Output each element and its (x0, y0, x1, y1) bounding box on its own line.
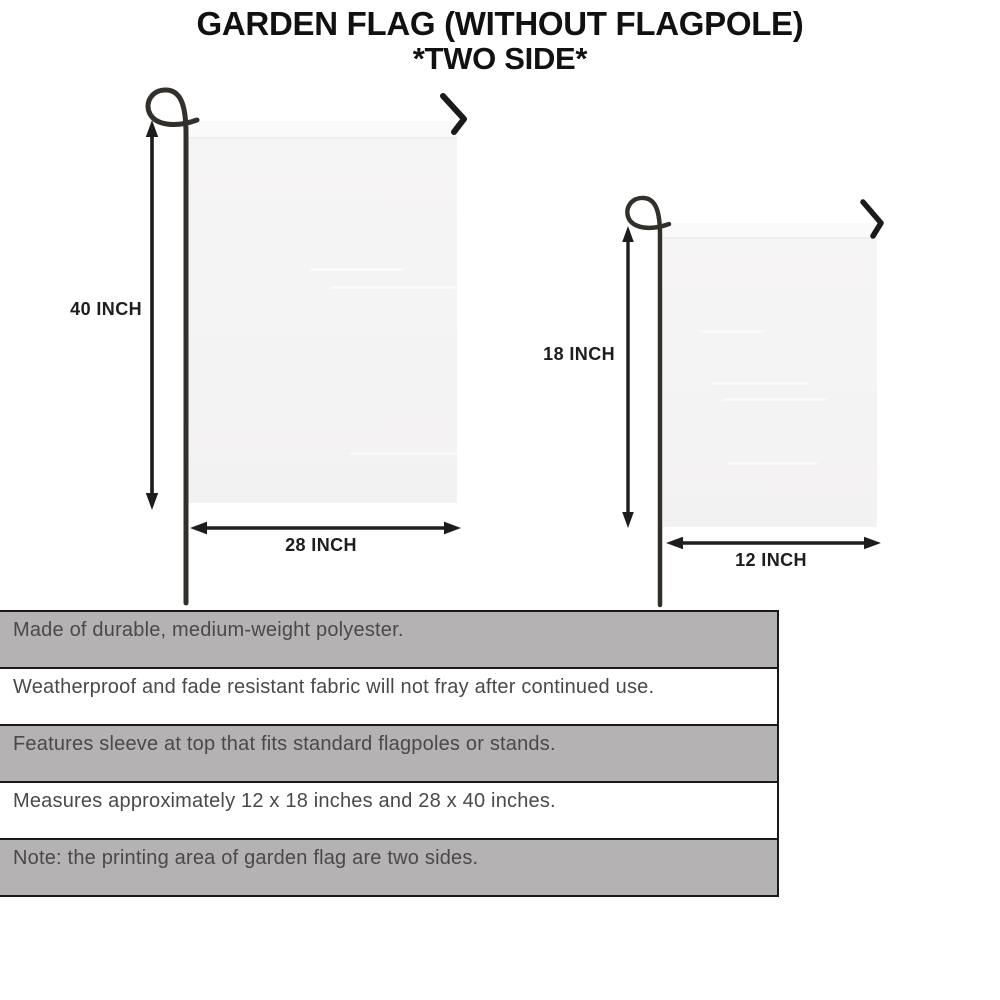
small-flag-width-arrow (666, 537, 881, 549)
large-flag-sleeve-seam (188, 137, 457, 139)
large-flag-height-arrow (146, 120, 158, 510)
flag-size-diagram (0, 0, 1000, 610)
small-flag-sleeve-seam (663, 237, 877, 239)
feature-row-material: Made of durable, medium-weight polyester… (0, 610, 779, 669)
garden-flag-infographic: GARDEN FLAG (WITHOUT FLAGPOLE) *TWO SIDE… (0, 0, 1000, 1000)
small-flag-height-label: 18 INCH (503, 344, 615, 365)
large-flag-group (146, 90, 490, 603)
feature-row-sleeve: Features sleeve at top that fits standar… (0, 724, 779, 783)
large-flag-fabric (188, 121, 457, 503)
feature-list: Made of durable, medium-weight polyester… (0, 610, 779, 897)
feature-row-note: Note: the printing area of garden flag a… (0, 838, 779, 897)
large-flag-width-label: 28 INCH (240, 535, 402, 556)
small-flag-width-label: 12 INCH (690, 550, 852, 571)
small-flag-height-arrow (622, 226, 634, 528)
large-flag-sleeve (188, 121, 457, 137)
small-flag-pole (627, 198, 669, 605)
large-flag-width-arrow (190, 522, 461, 535)
feature-row-measurements: Measures approximately 12 x 18 inches an… (0, 781, 779, 840)
large-flag-height-label: 40 INCH (28, 299, 142, 320)
small-flag-sleeve (663, 223, 877, 237)
small-flag-group (622, 198, 881, 605)
feature-row-weatherproof: Weatherproof and fade resistant fabric w… (0, 667, 779, 726)
small-flag-fabric (663, 223, 877, 527)
